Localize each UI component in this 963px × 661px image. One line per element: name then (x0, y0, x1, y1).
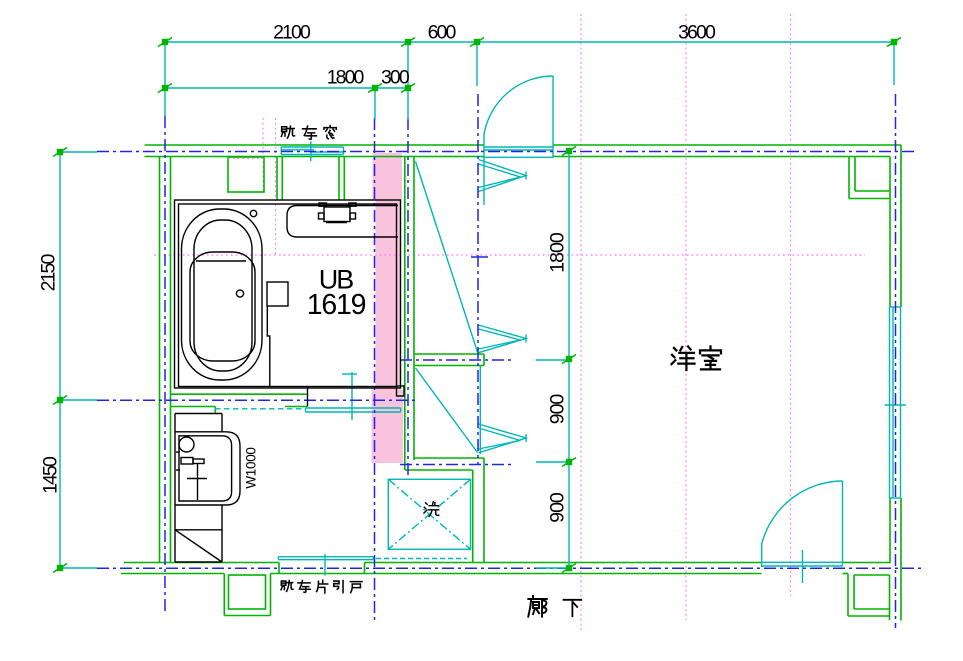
svg-text:3600: 3600 (678, 21, 716, 43)
svg-text:300: 300 (381, 67, 410, 89)
svg-text:1800: 1800 (547, 232, 569, 273)
svg-text:W1000: W1000 (244, 447, 259, 488)
svg-text:1619: 1619 (307, 289, 366, 321)
svg-text:900: 900 (547, 394, 569, 425)
svg-text:2100: 2100 (273, 21, 311, 43)
svg-text:900: 900 (547, 492, 569, 523)
svg-text:1450: 1450 (40, 456, 62, 494)
svg-text:2150: 2150 (38, 254, 60, 292)
svg-text:1800: 1800 (327, 67, 365, 89)
svg-text:600: 600 (428, 21, 457, 43)
